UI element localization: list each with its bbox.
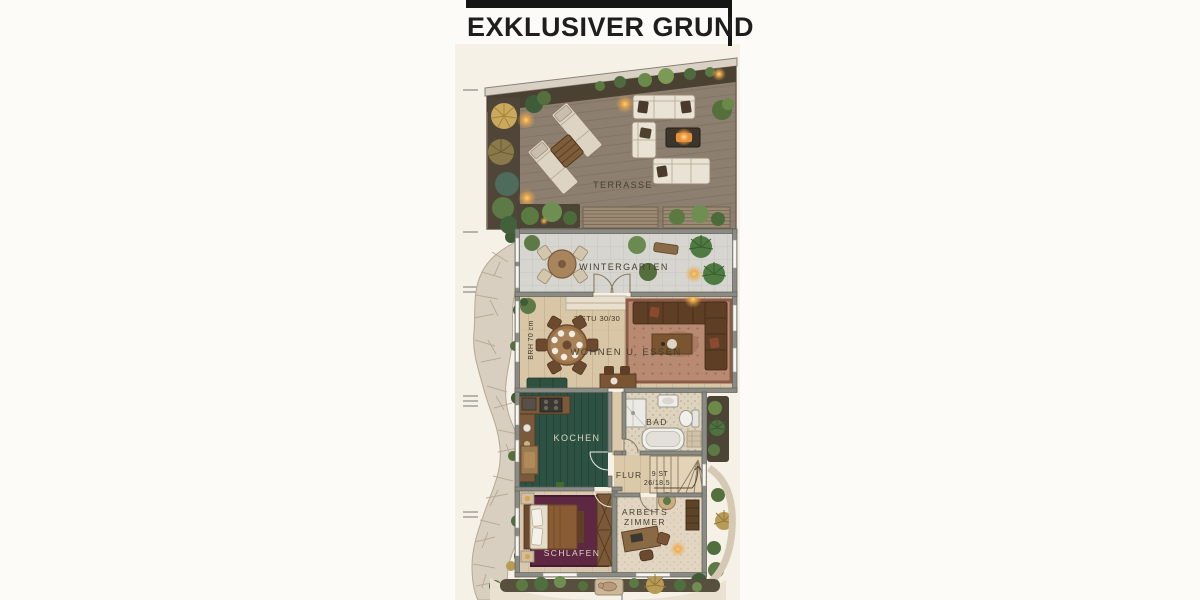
floorplan-page: TERRASSE	[0, 0, 1200, 600]
living-corner-sofa-set	[627, 290, 731, 382]
corridor-floor	[612, 392, 622, 455]
arbeitszimmer-room: ARBEITS ZIMMER	[617, 493, 702, 573]
page-title: EXKLUSIVER GRUND	[467, 12, 754, 42]
bathtub	[642, 428, 684, 450]
nightstand	[521, 551, 534, 562]
bed	[524, 505, 584, 549]
stairs-dim-annotation: 26/18.5	[644, 480, 670, 487]
toilet	[680, 410, 700, 427]
kochen-label: KOCHEN	[554, 433, 601, 443]
wintergarten-room: WINTERGARTEN	[519, 233, 733, 293]
bad-label: BAD	[646, 417, 668, 427]
terrace-area: TERRASSE	[485, 58, 737, 234]
nightstand	[521, 493, 534, 504]
sink	[658, 395, 678, 407]
schlafen-label: SCHLAFEN	[544, 548, 601, 558]
window-sill-annotation: BRH 70 cm	[528, 320, 535, 359]
wohnen-essen-label: WOHNEN U. ESSEN	[570, 347, 681, 358]
title-top-bar	[466, 0, 732, 8]
wohnen-essen-room: 2 STU 30/30	[519, 290, 733, 390]
title-block: EXKLUSIVER GRUND	[466, 0, 754, 46]
arbeitszimmer-label-line2: ZIMMER	[624, 517, 666, 527]
schlafen-room: SCHLAFEN	[519, 489, 612, 572]
kochen-room: KOCHEN	[519, 392, 608, 489]
stairs-count-annotation: 9 ST	[652, 471, 669, 478]
garden-statue	[595, 579, 623, 595]
floorplan-canvas: TERRASSE	[0, 0, 1200, 600]
bad-room: BAD	[620, 392, 702, 455]
flur-label: FLUR	[616, 470, 642, 480]
terrasse-label: TERRASSE	[593, 180, 653, 190]
arbeitszimmer-label-line1: ARBEITS	[622, 507, 668, 517]
bed-bench	[578, 511, 584, 543]
plant-icon	[520, 298, 528, 306]
bath-mat	[687, 431, 701, 447]
wintergarten-label: WINTERGARTEN	[579, 262, 669, 272]
fire-table	[666, 128, 700, 147]
bookshelf	[686, 500, 699, 530]
